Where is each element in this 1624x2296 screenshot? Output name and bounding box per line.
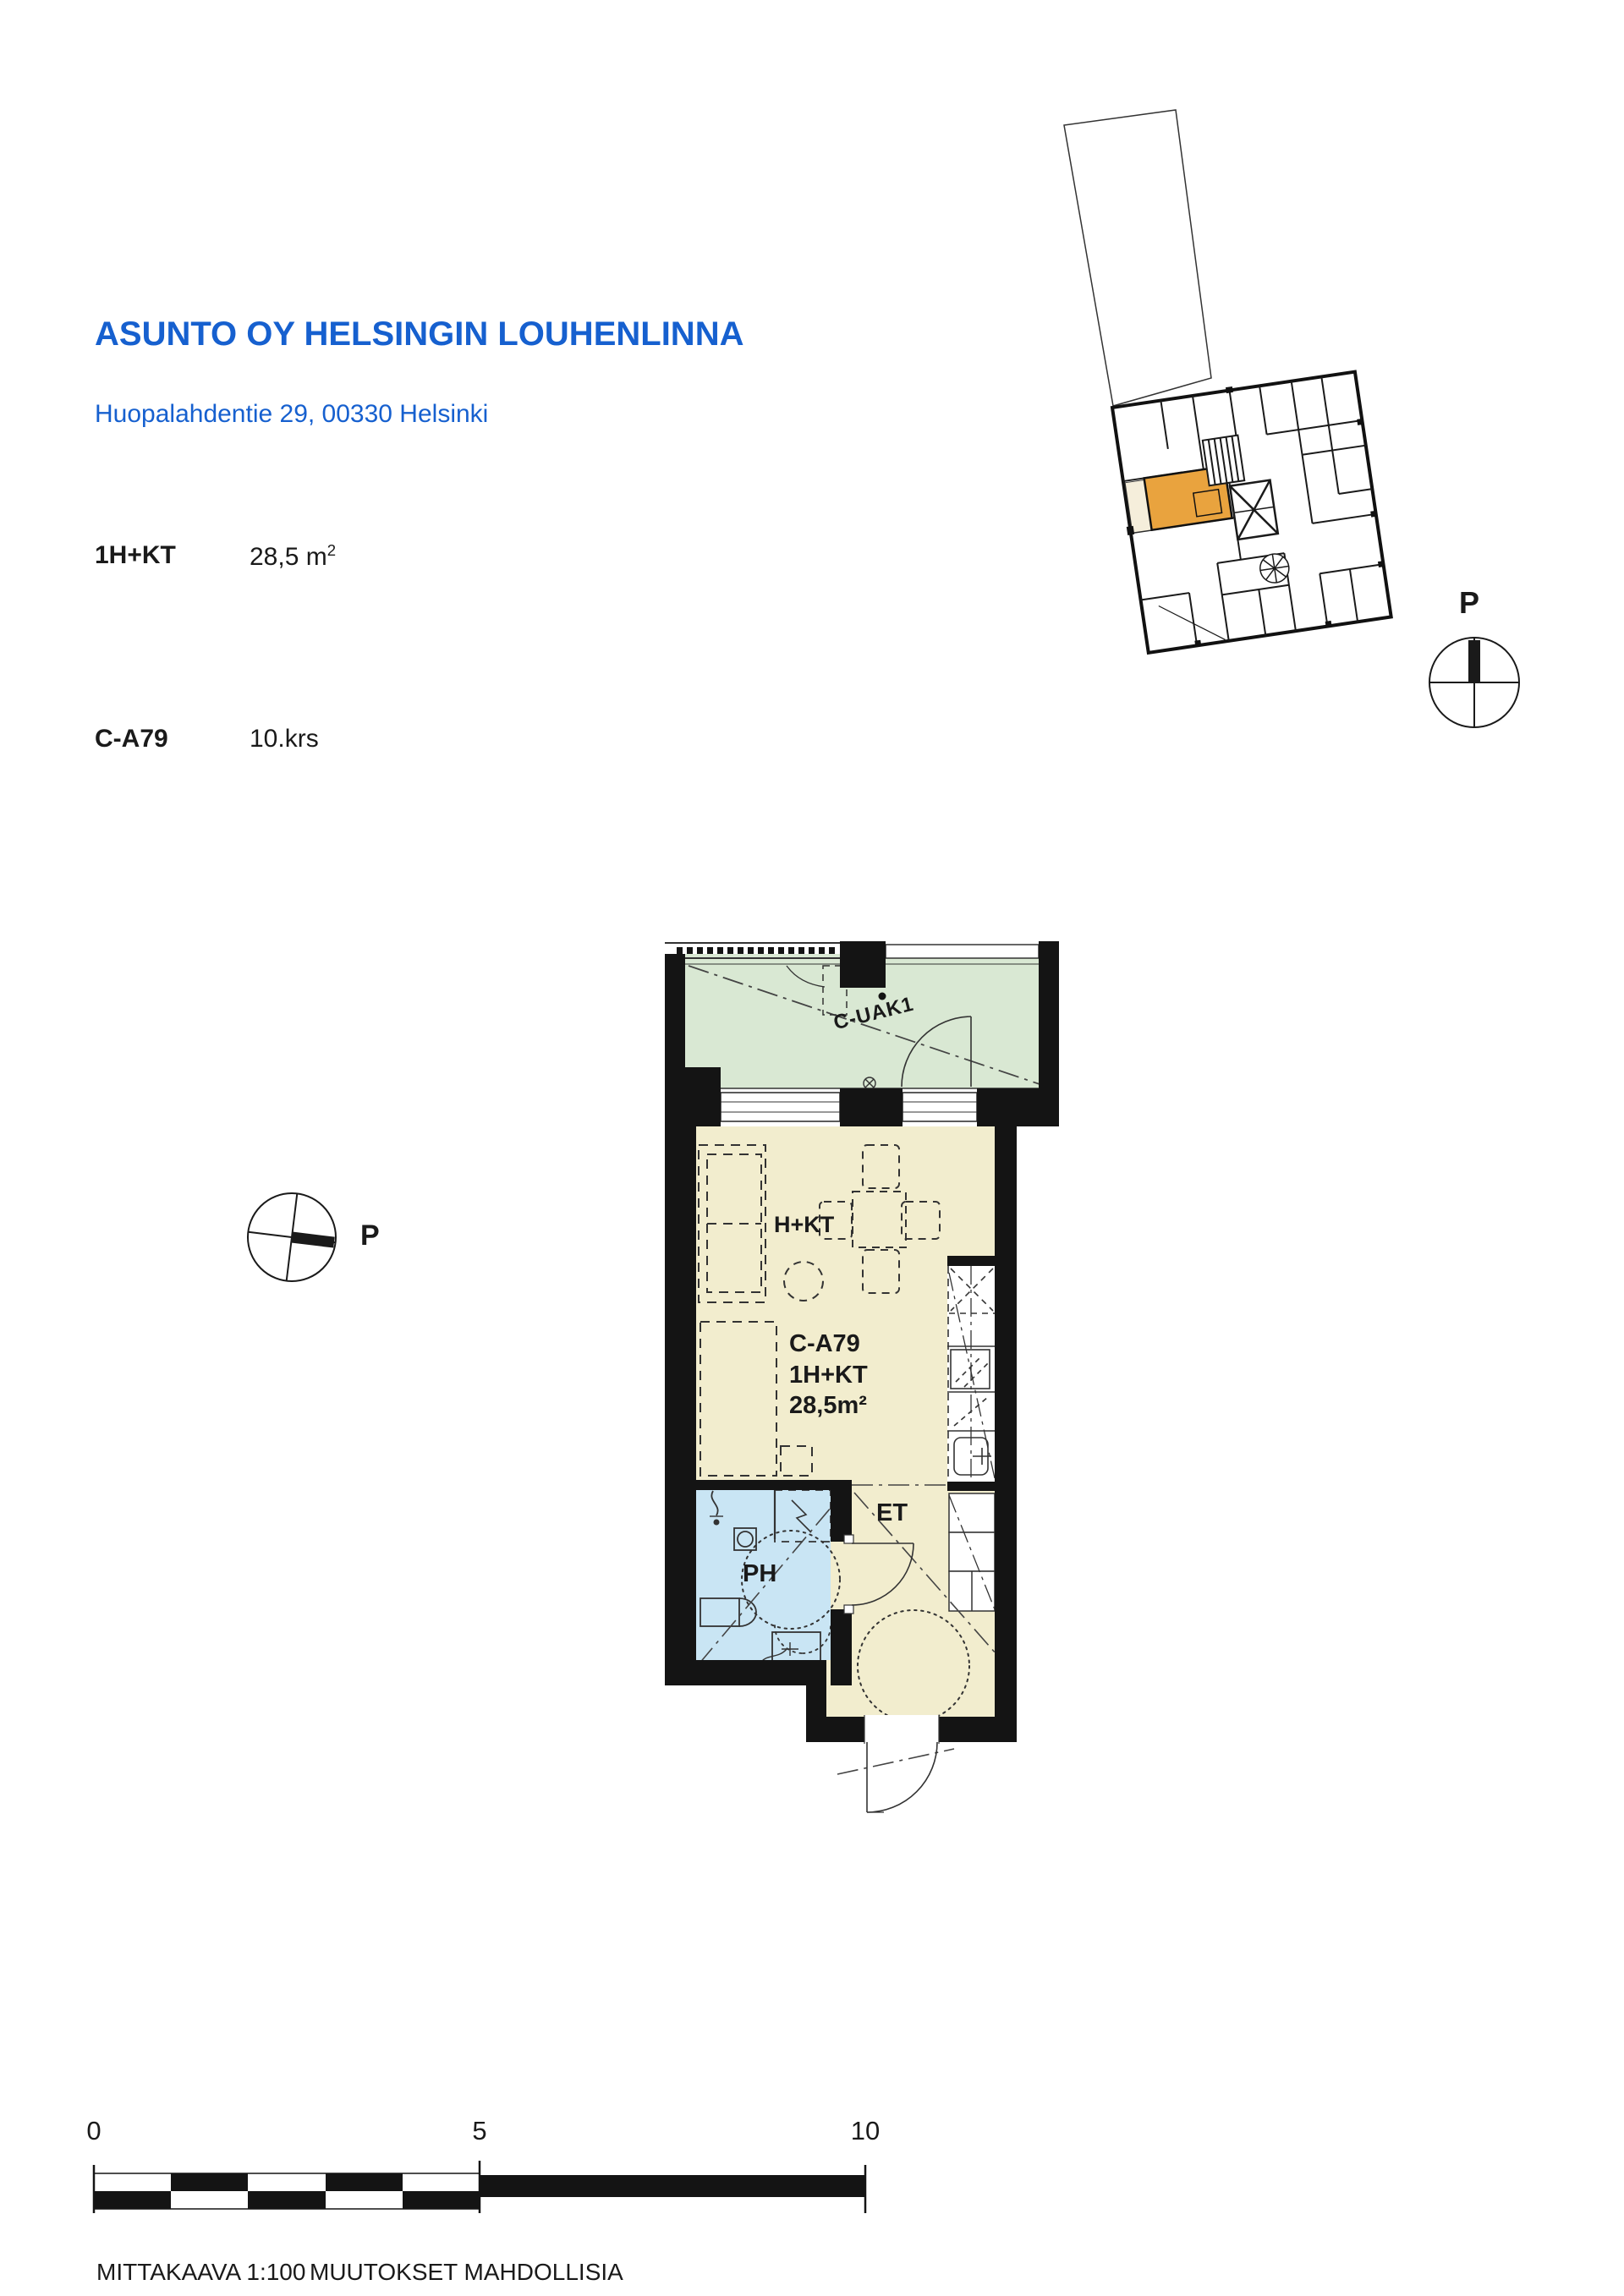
unit-area-value: 28,5 m2 [250, 542, 336, 571]
bottom-wall-right [939, 1717, 1017, 1742]
plan-compass [248, 1193, 336, 1281]
site-compass-label: P [1459, 587, 1479, 619]
room-label: H+KT [774, 1213, 834, 1236]
scale-start: 0 [77, 2118, 111, 2145]
kitchenette [947, 1266, 996, 1482]
window-living-left [721, 1093, 840, 1121]
site-parcel-outline [1064, 110, 1211, 406]
hall-wardrobes [949, 1493, 995, 1611]
plan-compass-label: P [360, 1221, 380, 1252]
site-compass [1429, 638, 1519, 727]
page-title: ASUNTO OY HELSINGIN LOUHENLINNA [95, 316, 743, 352]
window-living-right [903, 1093, 977, 1121]
scale-bar-segments [94, 2173, 865, 2209]
bathroom-right-wall-upper [831, 1490, 852, 1542]
floor-label: 10.krs [250, 726, 319, 753]
kitchen-cap-top [947, 1256, 996, 1266]
area-exponent: 2 [327, 541, 336, 559]
bottom-wall-left [806, 1717, 864, 1742]
kitchen-cap-bottom [947, 1482, 996, 1491]
site-key-plan [1108, 369, 1391, 655]
floor-plan-sheet: ASUNTO OY HELSINGIN LOUHENLINNA Huopalah… [0, 0, 1624, 2296]
scale-bar [94, 2161, 865, 2213]
area-number: 28,5 m [250, 543, 327, 571]
right-wall [995, 1126, 1017, 1742]
balcony-right-wall [1039, 941, 1059, 1088]
facade-wall-right [977, 1088, 1059, 1126]
site-stairwell [1203, 436, 1244, 486]
left-wall [665, 1126, 696, 1685]
plan-unit-type: 1H+KT [789, 1360, 868, 1391]
unit-type-label: 1H+KT [95, 542, 176, 569]
site-elevator [1230, 480, 1278, 540]
scale-end: 10 [848, 2118, 882, 2145]
facade-wall-mid [840, 1088, 903, 1126]
facade-wall-left [665, 1067, 721, 1126]
unit-id-label: C-A79 [95, 726, 168, 753]
disclaimer-caption: MUUTOKSET MAHDOLLISIA [310, 2260, 623, 2284]
hall-label: ET [876, 1500, 908, 1526]
bathroom-label: PH [743, 1561, 776, 1586]
bathroom-right-wall-lower [831, 1609, 852, 1685]
entry-door [864, 1715, 939, 1812]
balcony-mid-pier [840, 941, 886, 988]
exterior-cutout [665, 1685, 806, 1745]
unit-info-block: C-A79 1H+KT 28,5m² [789, 1329, 868, 1422]
bathroom-top-wall [696, 1480, 852, 1490]
bathroom-bottom-wall [665, 1660, 826, 1685]
scale-caption: MITTAKAAVA 1:100 [96, 2260, 305, 2284]
scale-middle: 5 [463, 2118, 497, 2145]
plan-unit-id: C-A79 [789, 1329, 868, 1360]
plan-unit-area: 28,5m² [789, 1390, 868, 1422]
plan-compass-north-needle [292, 1237, 334, 1242]
address: Huopalahdentie 29, 00330 Helsinki [95, 401, 488, 428]
